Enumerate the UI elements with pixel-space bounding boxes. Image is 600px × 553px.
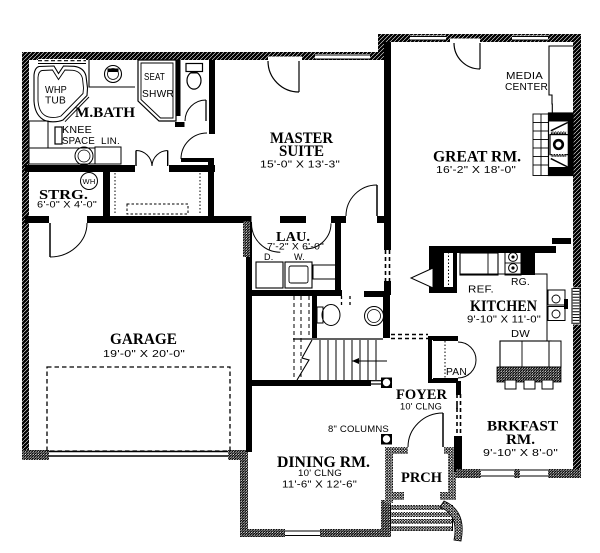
svg-text:KITCHEN: KITCHEN xyxy=(470,298,537,315)
svg-text:SPACE: SPACE xyxy=(62,136,95,147)
svg-text:9'-10" X 11'-0": 9'-10" X 11'-0" xyxy=(467,314,541,326)
svg-text:RM.: RM. xyxy=(506,432,535,448)
svg-text:11'-6" X 12'-6": 11'-6" X 12'-6" xyxy=(282,479,357,491)
svg-text:15'-0" X 13'-3": 15'-0" X 13'-3" xyxy=(260,159,340,171)
svg-text:REF.: REF. xyxy=(468,285,494,296)
svg-text:19'-0" X 20'-0": 19'-0" X 20'-0" xyxy=(103,348,185,360)
svg-text:SHWR: SHWR xyxy=(142,89,174,100)
svg-text:MEDIA: MEDIA xyxy=(506,71,543,82)
svg-text:DW: DW xyxy=(511,329,530,340)
svg-text:10' CLNG: 10' CLNG xyxy=(400,402,442,413)
svg-text:9'-10" X 8'-0": 9'-10" X 8'-0" xyxy=(483,447,558,459)
svg-text:CENTER: CENTER xyxy=(505,82,548,93)
svg-text:TUB: TUB xyxy=(45,96,66,107)
svg-text:W.: W. xyxy=(294,252,305,262)
svg-text:GARAGE: GARAGE xyxy=(110,331,177,348)
svg-text:8" COLUMNS: 8" COLUMNS xyxy=(328,424,389,435)
svg-text:10' CLNG: 10' CLNG xyxy=(298,468,342,479)
svg-text:WH: WH xyxy=(83,177,96,186)
svg-text:PRCH: PRCH xyxy=(401,470,442,486)
svg-text:GREAT RM.: GREAT RM. xyxy=(433,149,521,166)
svg-text:6'-0" X 4'-0": 6'-0" X 4'-0" xyxy=(37,200,97,211)
svg-text:LIN.: LIN. xyxy=(101,136,120,146)
svg-text:RG.: RG. xyxy=(511,277,530,288)
svg-text:KNEE: KNEE xyxy=(62,125,92,136)
svg-text:SEAT: SEAT xyxy=(144,72,165,83)
svg-text:16'-2" X 18'-0": 16'-2" X 18'-0" xyxy=(436,164,516,176)
svg-text:M.BATH: M.BATH xyxy=(75,105,135,121)
svg-text:D.: D. xyxy=(264,252,273,262)
svg-text:WHP: WHP xyxy=(45,85,67,96)
svg-text:SUITE: SUITE xyxy=(279,143,324,160)
